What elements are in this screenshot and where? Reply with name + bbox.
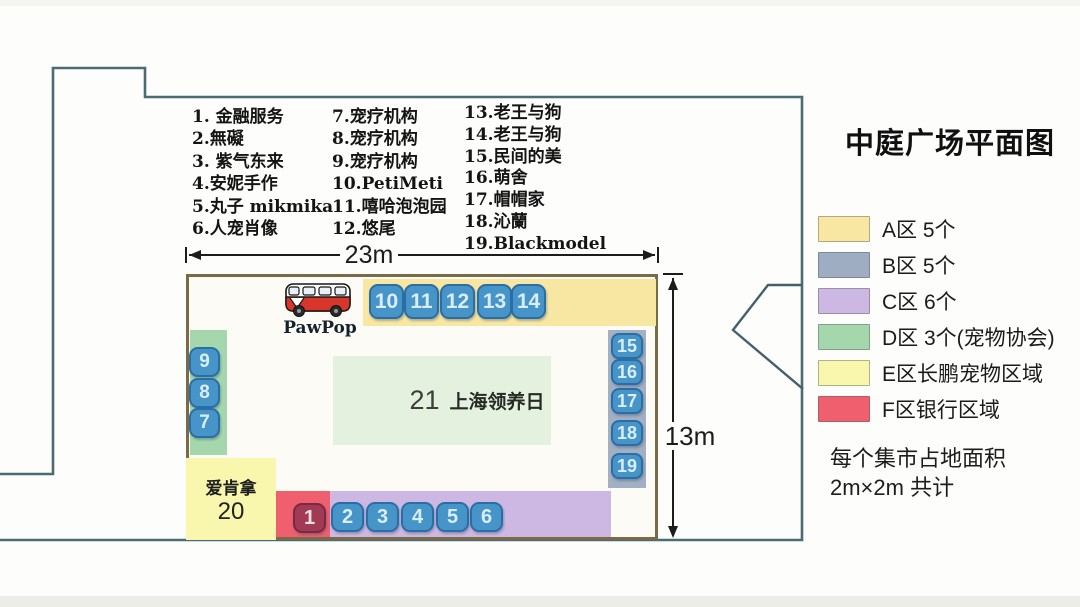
vendor-item: 10.PetiMeti <box>332 173 447 195</box>
height-dimension-line <box>663 274 683 536</box>
booth-18: 18 <box>611 420 643 446</box>
booth-1: 1 <box>293 503 326 533</box>
vendor-item: 15.民间的美 <box>464 147 606 169</box>
area-note: 每个集市占地面积 2m×2m 共计 <box>830 444 1006 502</box>
booth-8: 8 <box>189 378 220 408</box>
vendor-item: 12.悠尾 <box>332 218 447 240</box>
booth-5: 5 <box>436 502 469 532</box>
booth-19: 19 <box>611 453 643 479</box>
booth-15: 15 <box>611 333 643 359</box>
area-note-line2: 2m×2m 共计 <box>830 473 1006 502</box>
vendor-list-column-2: 7.宠疗机构 8.宠疗机构 9.宠疗机构 10.PetiMeti 11.嘻哈泡泡… <box>332 106 447 240</box>
area-note-line1: 每个集市占地面积 <box>830 444 1006 473</box>
vendor-item: 8.宠疗机构 <box>332 128 447 150</box>
page-title: 中庭广场平面图 <box>845 120 1055 162</box>
legend-label: D区 3个(宠物协会) <box>882 322 1055 352</box>
vendor-item: 1. 金融服务 <box>192 106 333 128</box>
vendor-item: 19.Blackmodel <box>464 234 606 256</box>
arrow-up <box>668 278 678 290</box>
vendor-item: 9.宠疗机构 <box>332 151 447 173</box>
adoption-day-area: 21 上海领养日 <box>333 356 551 445</box>
booth-9: 9 <box>189 347 220 377</box>
entrance-notch <box>733 285 803 389</box>
vendor-item: 18.沁蘭 <box>464 212 606 234</box>
booth-3: 3 <box>366 502 399 532</box>
legend-label: A区 5个 <box>882 214 956 244</box>
vendor-item: 4.安妮手作 <box>192 173 333 195</box>
vendor-item: 7.宠疗机构 <box>332 106 447 128</box>
booth-4: 4 <box>401 502 434 532</box>
top-edge-artifact <box>0 0 1080 6</box>
legend-row-d: D区 3个(宠物协会) <box>818 324 1055 350</box>
legend-row-c: C区 6个 <box>818 288 1055 314</box>
booth-16: 16 <box>611 359 643 385</box>
vendor-list-column-3: 13.老王与狗 14.老王与狗 15.民间的美 16.萌舍 17.帽帽家 18.… <box>464 103 606 256</box>
zone-d-swatch <box>818 324 870 350</box>
booth-10: 10 <box>369 284 404 319</box>
zone-c-swatch <box>818 288 870 314</box>
arrow-down <box>668 526 678 538</box>
vendor-item: 11.嘻哈泡泡园 <box>332 196 447 218</box>
acana-label: 爱肯拿 <box>206 474 257 499</box>
vendor-item: 3. 紫气东来 <box>192 151 333 173</box>
legend-row-b: B区 5个 <box>818 252 1055 278</box>
booth-13: 13 <box>477 284 512 319</box>
booth-11: 11 <box>404 284 439 319</box>
vendor-item: 6.人宠肖像 <box>192 218 333 240</box>
pawpop-label: PawPop <box>282 318 358 338</box>
booth-17: 17 <box>611 388 643 414</box>
zone-b-swatch <box>818 252 870 278</box>
vendor-item: 14.老王与狗 <box>464 125 606 147</box>
vendor-item: 16.萌舍 <box>464 168 606 190</box>
arrow-left <box>189 250 201 260</box>
booth-14: 14 <box>511 284 546 319</box>
legend-label: E区长鹏宠物区域 <box>882 358 1043 388</box>
acana-number: 20 <box>218 499 245 525</box>
booth-7: 7 <box>189 408 220 438</box>
pawpop-bus-illustration <box>284 280 354 320</box>
zone-a-swatch <box>818 216 870 242</box>
legend-label: C区 6个 <box>882 286 957 316</box>
adoption-area-label: 上海领养日 <box>450 387 545 414</box>
vendor-list-column-1: 1. 金融服务 2.無礙 3. 紫气东来 4.安妮手作 5.丸子 mikmika… <box>192 106 333 240</box>
legend-label: F区银行区域 <box>882 394 1000 424</box>
legend-label: B区 5个 <box>882 250 956 280</box>
vendor-item: 13.老王与狗 <box>464 103 606 125</box>
adoption-area-number: 21 <box>409 385 439 416</box>
zone-e-swatch <box>818 360 870 386</box>
legend: A区 5个 B区 5个 C区 6个 D区 3个(宠物协会) E区长鹏宠物区域 F… <box>818 216 1055 422</box>
plaza-plan-area: 21 上海领养日 爱肯拿 20 PawPop <box>186 274 658 540</box>
zone-f-swatch <box>818 396 870 422</box>
booth-6: 6 <box>470 502 503 532</box>
bus-icon <box>284 280 354 320</box>
bottom-edge-artifact <box>0 596 1080 607</box>
height-dimension-label: 13m <box>659 422 721 450</box>
legend-row-e: E区长鹏宠物区域 <box>818 360 1055 386</box>
booth-12: 12 <box>440 284 475 319</box>
legend-row-f: F区银行区域 <box>818 396 1055 422</box>
booth-2: 2 <box>331 502 364 532</box>
zone-e-acana-block: 爱肯拿 20 <box>186 458 276 540</box>
vendor-item: 2.無礙 <box>192 128 333 150</box>
vendor-item: 17.帽帽家 <box>464 190 606 212</box>
arrow-right <box>643 250 655 260</box>
legend-row-a: A区 5个 <box>818 216 1055 242</box>
width-dimension-label: 23m <box>340 241 398 269</box>
vendor-item: 5.丸子 mikmika <box>192 196 333 218</box>
floor-plan-canvas: 1. 金融服务 2.無礙 3. 紫气东来 4.安妮手作 5.丸子 mikmika… <box>0 0 1080 607</box>
